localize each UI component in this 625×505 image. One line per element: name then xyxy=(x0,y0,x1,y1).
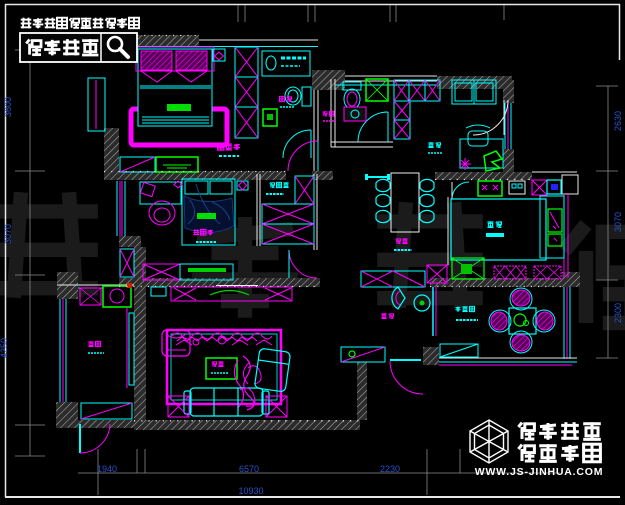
svg-text:4250: 4250 xyxy=(0,338,9,358)
svg-text:3070: 3070 xyxy=(3,224,13,244)
svg-text:1940: 1940 xyxy=(97,464,117,474)
svg-text:2630: 2630 xyxy=(613,111,623,131)
svg-text:6570: 6570 xyxy=(239,464,259,474)
svg-text:3600: 3600 xyxy=(3,97,13,117)
svg-text:3070: 3070 xyxy=(613,212,623,232)
svg-text:WWW.JS-JINHUA.COM: WWW.JS-JINHUA.COM xyxy=(475,466,604,478)
svg-text:10930: 10930 xyxy=(238,486,263,496)
svg-text:2300: 2300 xyxy=(613,303,623,323)
svg-text:2230: 2230 xyxy=(380,464,400,474)
